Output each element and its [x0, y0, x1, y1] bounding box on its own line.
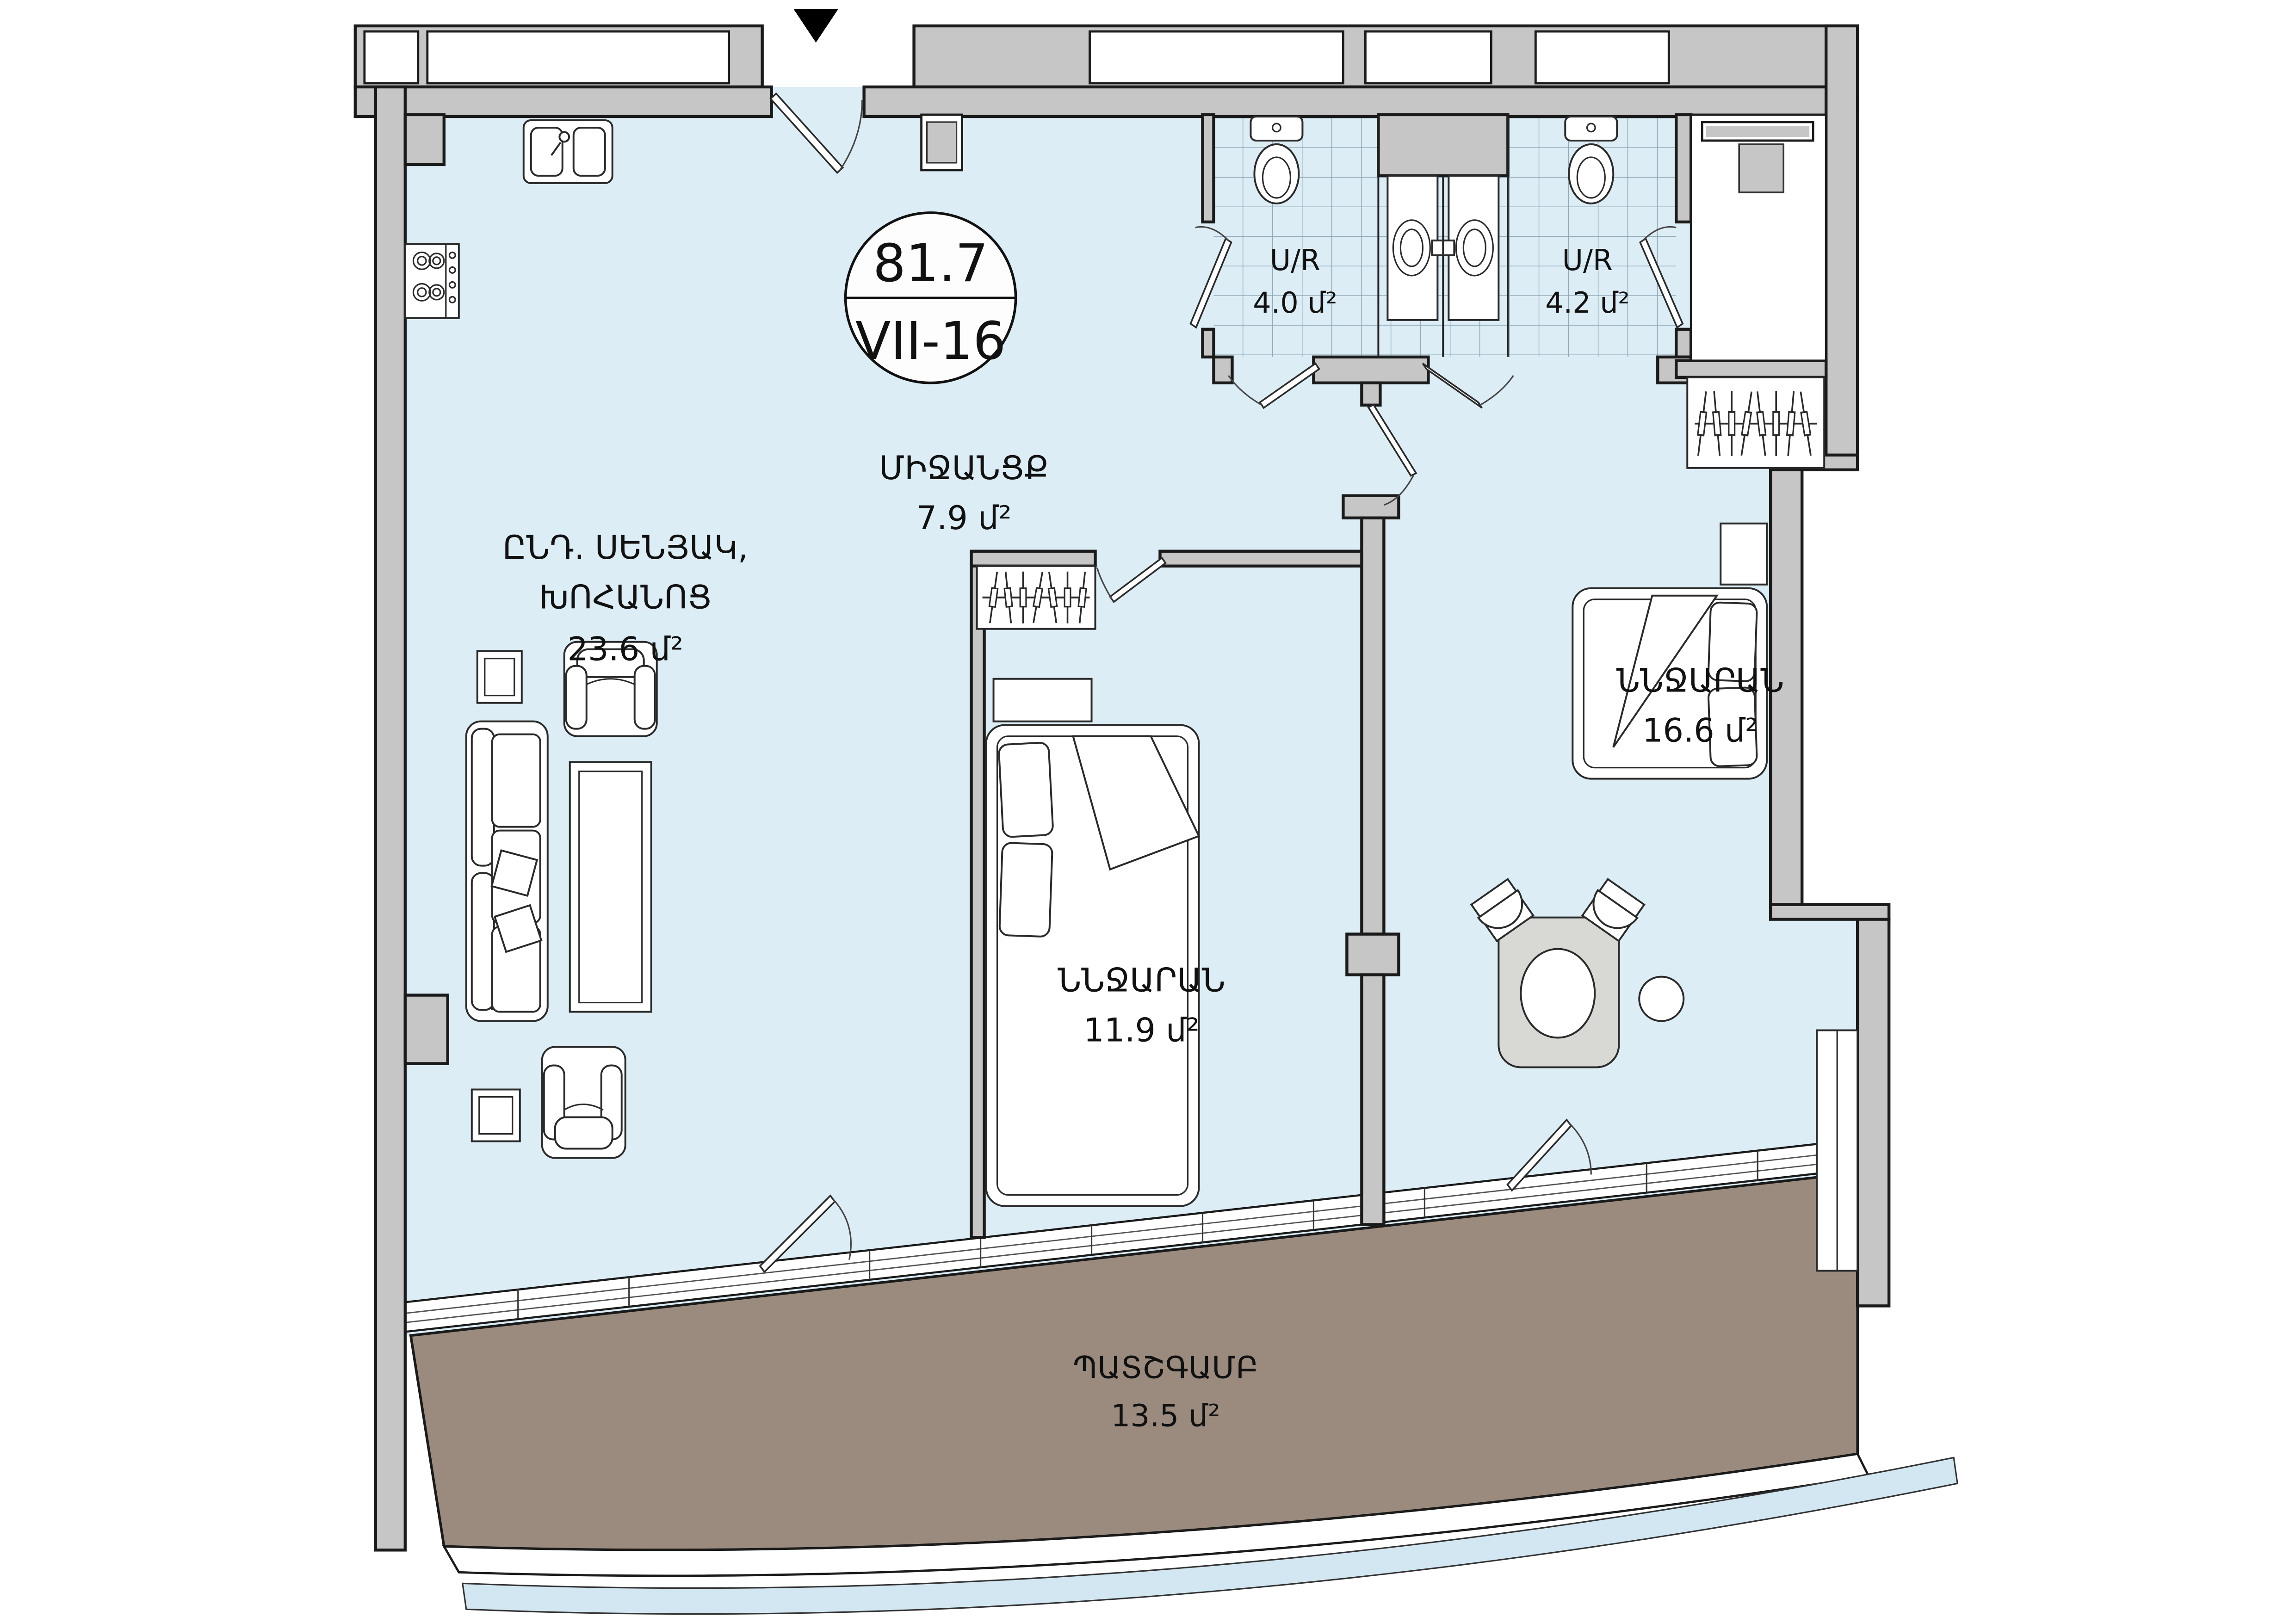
- bedroom1-west-wall: [972, 566, 984, 1238]
- living-room-label-1: ԸՆԴ. ՍԵՆՅԱԿ,: [502, 529, 748, 567]
- bedroom1-north-wall-b: [1160, 551, 1362, 566]
- bath1-west-wall-upper: [1202, 115, 1213, 222]
- top-wall-inner-left: [355, 87, 772, 117]
- right-wall-upper: [1826, 26, 1857, 470]
- bath2-east-wall-lower: [1676, 329, 1691, 357]
- hallway-label: ՄԻՋԱՆՑՔ: [879, 449, 1049, 487]
- toilet1-icon: [1250, 117, 1302, 204]
- sofa: [466, 722, 548, 1021]
- unit-total-area: 81.7: [873, 234, 988, 294]
- divider-wall-pier: [1347, 934, 1399, 975]
- bath-divider-cap: [1378, 115, 1508, 176]
- dresser: [1817, 1031, 1857, 1271]
- kitchen-sink-icon: [524, 120, 613, 183]
- niche-bottom-wall: [1676, 361, 1826, 377]
- armchair-2: [542, 1047, 625, 1158]
- balcony-area: 13.5 մ²: [1111, 1398, 1220, 1433]
- bedroom1-label: ՆՆՋԱՐԱՆ: [1058, 962, 1225, 1000]
- balcony-label: ՊԱՏՇԳԱՄԲ: [1073, 1350, 1258, 1385]
- entrance-arrow-icon: [794, 9, 838, 43]
- bathroom1-area: 4.0 մ²: [1253, 286, 1337, 320]
- exterior-right-mid: [1802, 470, 1931, 905]
- side-table-1: [477, 651, 522, 703]
- living-room-area: 23.6 մ²: [568, 630, 683, 668]
- bathroom1-label: U/R: [1270, 243, 1320, 277]
- right-wall-lower: [1857, 919, 1889, 1306]
- bathroom2-label: U/R: [1562, 243, 1613, 277]
- bedroom2-table: [1498, 918, 1619, 1068]
- bedroom-divider-wall: [1362, 518, 1384, 934]
- right-wall-jog-lower: [1770, 905, 1889, 919]
- stove-icon: [405, 244, 459, 318]
- bath-bottom-wall-center: [1313, 357, 1428, 383]
- bedroom2-area: 16.6 մ²: [1642, 712, 1758, 750]
- bath1-west-wall-lower: [1202, 329, 1213, 357]
- bathroom2-area: 4.2 մ²: [1545, 286, 1629, 320]
- floor-plan: 81.7 VII-16 ԸՆԴ. ՍԵՆՅԱԿ, ԽՈՀԱՆՈՑ 23.6 մ²…: [0, 0, 2296, 1622]
- top-wall-inner-right: [864, 87, 1858, 117]
- hall-t-wall: [1343, 496, 1399, 518]
- hallway-area: 7.9 մ²: [916, 499, 1012, 537]
- nightstand-2: [1720, 524, 1767, 585]
- bedroom1-area: 11.9 մ²: [1083, 1012, 1199, 1049]
- bedroom2-label: ՆՆՋԱՐԱՆ: [1616, 662, 1784, 700]
- bath-bottom-stub-left: [1213, 357, 1232, 383]
- exterior-right-upper: [1857, 111, 2005, 470]
- bedroom-divider-wall-lower: [1362, 975, 1384, 1225]
- nightstand-1: [994, 679, 1092, 722]
- entrance-shaft: [922, 115, 962, 170]
- unit-code: VII-16: [855, 311, 1006, 371]
- kitchen-corner-notch: [405, 115, 444, 165]
- side-table-2: [472, 1090, 520, 1142]
- hall-center-stub: [1362, 383, 1380, 405]
- service-niche: [1691, 115, 1826, 361]
- left-wall-pier: [405, 995, 448, 1064]
- bath2-east-wall-upper: [1676, 115, 1691, 222]
- wardrobe-1: [977, 566, 1095, 629]
- unit-marker: 81.7 VII-16: [846, 213, 1016, 383]
- coffee-table: [570, 762, 651, 1012]
- living-room-label-2: ԽՈՀԱՆՈՑ: [539, 579, 712, 617]
- wardrobe-2: [1687, 377, 1824, 468]
- bedroom1-north-wall-a: [972, 551, 1095, 566]
- pouf: [1639, 977, 1683, 1021]
- left-wall: [376, 87, 405, 1550]
- toilet2-icon: [1565, 117, 1617, 204]
